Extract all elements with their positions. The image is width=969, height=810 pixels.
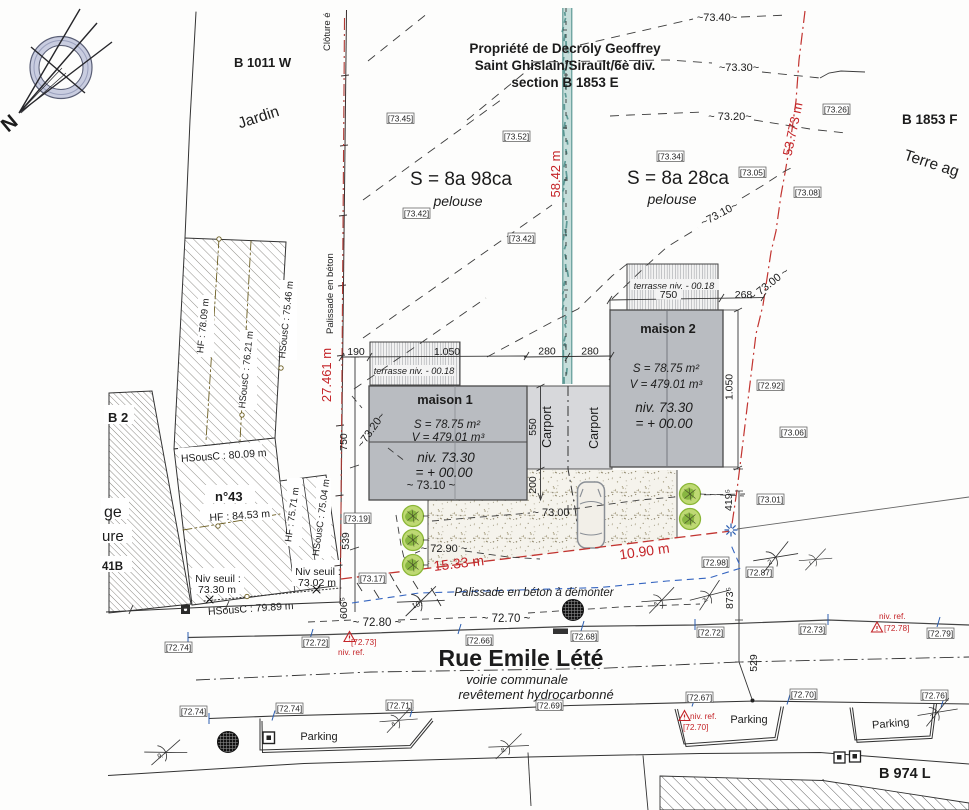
svg-text:Propriété de Decroly Geoffrey: Propriété de Decroly Geoffrey	[469, 41, 661, 56]
svg-text:[73.06]: [73.06]	[781, 427, 806, 437]
svg-text:550: 550	[527, 418, 539, 436]
svg-text:Carport: Carport	[540, 406, 554, 448]
svg-text:419⁵: 419⁵	[723, 489, 735, 511]
svg-text:niv. 73.30: niv. 73.30	[417, 450, 475, 465]
svg-text:1.050: 1.050	[724, 374, 736, 400]
svg-text:section B 1853 E: section B 1853 E	[511, 75, 618, 90]
svg-text:ure: ure	[102, 528, 124, 545]
svg-text:[72.66]: [72.66]	[467, 635, 492, 645]
svg-text:58.42 m: 58.42 m	[548, 151, 563, 198]
svg-text:280: 280	[581, 346, 599, 358]
svg-text:~ 73.20~: ~ 73.20~	[708, 111, 751, 123]
svg-text:[73.05]: [73.05]	[740, 167, 765, 177]
svg-text:[72.74]: [72.74]	[277, 703, 302, 713]
svg-text:27.461 m: 27.461 m	[319, 348, 334, 402]
svg-text:~73.10~: ~73.10~	[699, 200, 740, 230]
svg-text:niv. ref.: niv. ref.	[690, 711, 717, 721]
svg-text:1.050: 1.050	[434, 346, 460, 358]
svg-text:[72.72]: [72.72]	[303, 637, 328, 647]
svg-text:280: 280	[538, 346, 556, 358]
svg-text:539: 539	[340, 532, 352, 550]
svg-text:[72.92]: [72.92]	[758, 380, 783, 390]
svg-text:Palissade en béton à démonter: Palissade en béton à démonter	[454, 587, 614, 599]
svg-text:268: 268	[735, 289, 753, 301]
svg-text:V = 479.01 m³: V = 479.01 m³	[412, 432, 486, 444]
svg-text:Parking: Parking	[300, 731, 337, 743]
svg-text:S = 8a 98ca: S = 8a 98ca	[410, 169, 512, 190]
svg-text:pelouse: pelouse	[646, 191, 696, 207]
svg-text:[73.01]: [73.01]	[758, 494, 783, 504]
svg-text:~ 72.70 ~: ~ 72.70 ~	[482, 613, 531, 625]
svg-text:B 974 L: B 974 L	[879, 766, 931, 782]
svg-text:8.: 8.	[500, 746, 507, 754]
svg-text:[73.45]: [73.45]	[388, 113, 413, 123]
svg-text:Saint Ghislain/Sirault/6è div.: Saint Ghislain/Sirault/6è div.	[475, 58, 656, 73]
svg-text:[72.72]: [72.72]	[698, 627, 723, 637]
svg-text:73.02 m: 73.02 m	[298, 577, 336, 589]
svg-text:750: 750	[338, 433, 350, 451]
svg-text:Clôture é: Clôture é	[322, 12, 333, 51]
svg-text:[72.73]: [72.73]	[351, 637, 376, 647]
svg-text:[73.17]: [73.17]	[360, 573, 385, 583]
svg-text:[73.26]: [73.26]	[824, 104, 849, 114]
svg-text:B 1011 W: B 1011 W	[234, 55, 292, 70]
svg-text:[72.67]: [72.67]	[687, 692, 712, 702]
svg-text:Jardin: Jardin	[236, 103, 281, 132]
svg-text:606⁵: 606⁵	[338, 597, 350, 619]
svg-text:= + 00.00: = + 00.00	[635, 416, 693, 431]
svg-text:= + 00.00: = + 00.00	[415, 465, 473, 480]
svg-text:maison 1: maison 1	[417, 392, 472, 407]
svg-text:[73.34]: [73.34]	[658, 151, 683, 161]
svg-text:873⁵: 873⁵	[724, 587, 736, 609]
svg-text:B 2: B 2	[108, 410, 128, 425]
svg-text:revêtement hydrocarbonné: revêtement hydrocarbonné	[458, 687, 613, 702]
svg-text:[72.71]: [72.71]	[387, 700, 412, 710]
svg-text:~73.40~: ~73.40~	[697, 12, 737, 24]
svg-text:[73.42]: [73.42]	[509, 233, 534, 243]
svg-text:53.773 m: 53.773 m	[780, 101, 806, 157]
svg-text:Parking: Parking	[730, 714, 767, 726]
svg-text:[73.08]: [73.08]	[795, 187, 820, 197]
svg-text:voirie communale: voirie communale	[466, 672, 568, 687]
svg-text:[72.76]: [72.76]	[922, 690, 947, 700]
svg-text:Terre ag: Terre ag	[902, 147, 961, 181]
svg-text:pelouse: pelouse	[432, 193, 482, 209]
svg-text:[72.74]: [72.74]	[166, 642, 191, 652]
svg-text:niv. ref.: niv. ref.	[338, 647, 365, 657]
svg-text:529: 529	[748, 654, 760, 672]
svg-text:6: 6	[391, 721, 397, 728]
svg-text:Palissade en béton: Palissade en béton	[325, 253, 336, 334]
svg-text:[73.19]: [73.19]	[345, 513, 370, 523]
svg-text:~ 73.10 ~: ~ 73.10 ~	[407, 480, 456, 492]
svg-text:[72.73]: [72.73]	[800, 624, 825, 634]
svg-text:ge: ge	[104, 504, 122, 521]
svg-text:n°43: n°43	[215, 489, 243, 504]
svg-text:maison 2: maison 2	[640, 321, 695, 336]
svg-text:V = 479.01 m³: V = 479.01 m³	[630, 379, 704, 391]
svg-text:Rue Emile Lété: Rue Emile Lété	[439, 645, 604, 671]
svg-text:niv. 73.30: niv. 73.30	[635, 400, 693, 415]
svg-text:[72.79]: [72.79]	[928, 628, 953, 638]
svg-text:200: 200	[527, 476, 539, 494]
svg-text:B 1853 F: B 1853 F	[902, 112, 958, 127]
svg-text:9.: 9.	[157, 752, 164, 760]
svg-text:niv. ref.: niv. ref.	[879, 611, 906, 621]
svg-text:~ 72.90 ~: ~ 72.90 ~	[421, 543, 468, 555]
svg-text:[73.52]: [73.52]	[504, 131, 529, 141]
svg-text:41B: 41B	[102, 561, 123, 573]
svg-text:S = 78.75 m²: S = 78.75 m²	[633, 363, 700, 375]
svg-text:Parking: Parking	[872, 716, 910, 731]
svg-text:[72.70]: [72.70]	[683, 722, 708, 732]
svg-text:~73.30~: ~73.30~	[719, 62, 759, 74]
svg-text:[72.68]: [72.68]	[572, 631, 597, 641]
svg-text:[72.87]: [72.87]	[747, 567, 772, 577]
svg-text:750: 750	[660, 289, 678, 301]
svg-text:N: N	[0, 111, 22, 137]
svg-text:[72.78]: [72.78]	[884, 623, 909, 633]
svg-text:73.30 m: 73.30 m	[198, 584, 236, 596]
svg-text:2: 2	[766, 558, 773, 567]
svg-text:Carport: Carport	[587, 407, 601, 449]
svg-text:~ 72.80 ~: ~ 72.80 ~	[353, 617, 402, 629]
svg-text:S = 78.75 m²: S = 78.75 m²	[414, 419, 481, 431]
svg-text:[72.98]: [72.98]	[703, 557, 728, 567]
svg-text:S = 8a 28ca: S = 8a 28ca	[627, 168, 729, 189]
svg-text:[73.42]: [73.42]	[404, 208, 429, 218]
svg-text:190: 190	[347, 346, 365, 358]
svg-text:5.: 5.	[653, 600, 661, 608]
svg-text:~ 73.00: ~ 73.00	[532, 507, 569, 519]
svg-text:[72.70]: [72.70]	[791, 689, 816, 699]
svg-text:[72.74]: [72.74]	[181, 706, 206, 716]
svg-text:HSousC : 79.89 m: HSousC : 79.89 m	[208, 600, 295, 618]
